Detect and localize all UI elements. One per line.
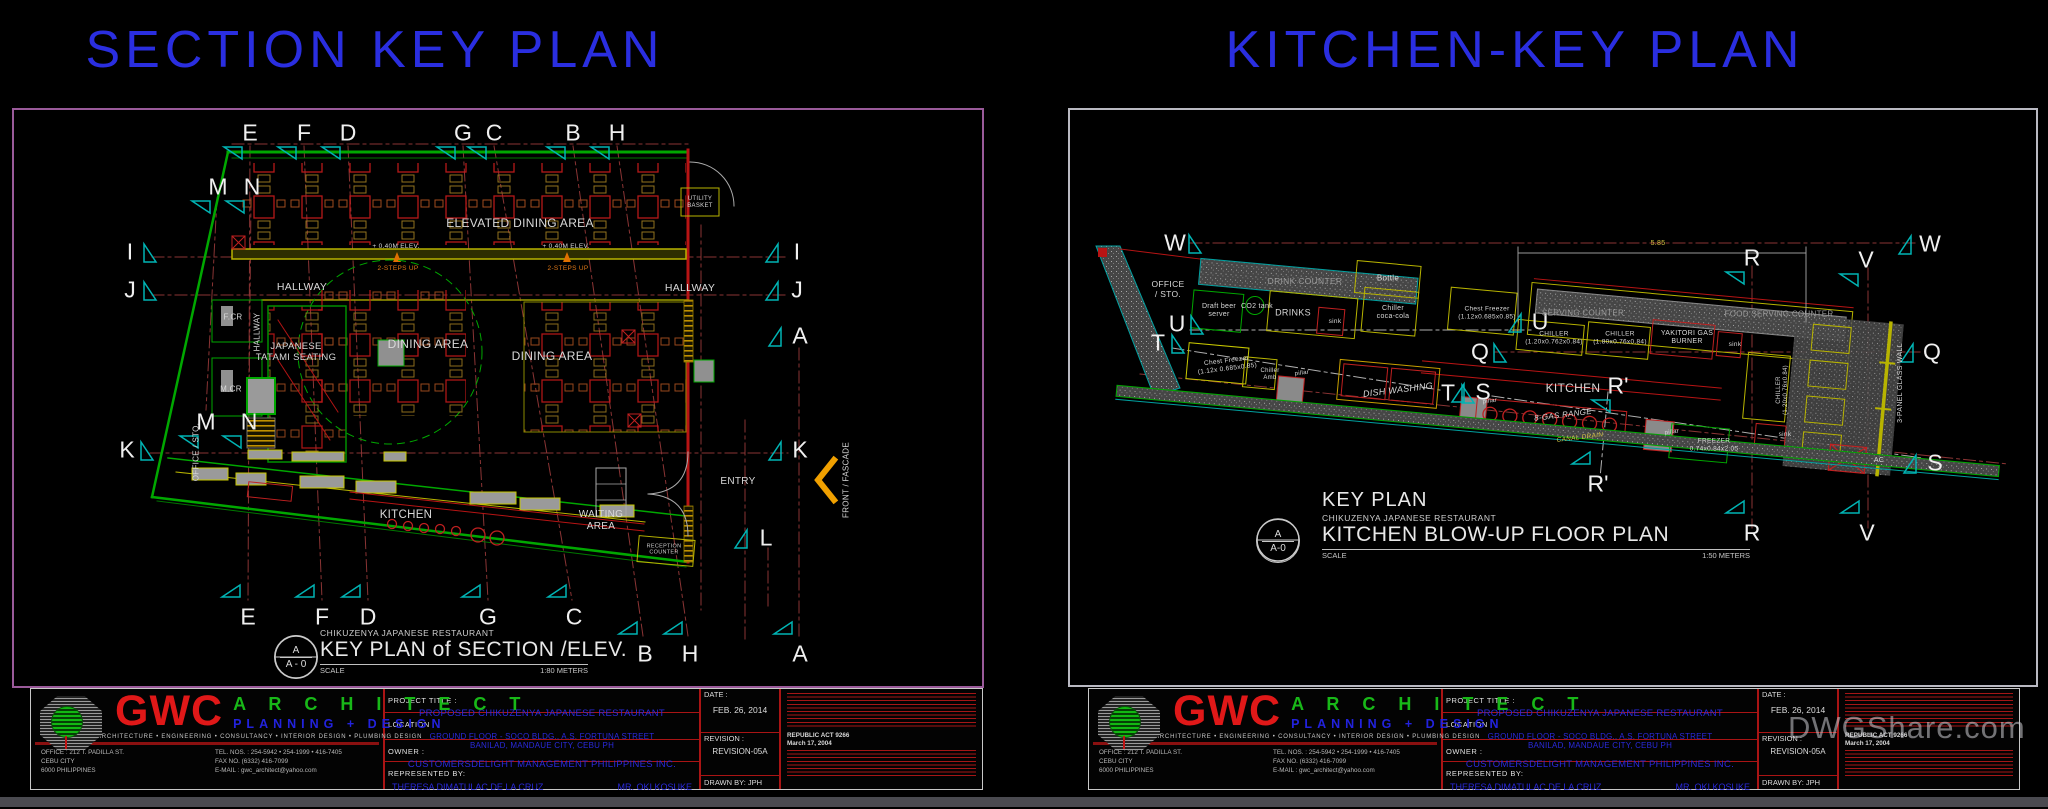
room-label-dining-area: DINING AREA: [512, 349, 593, 363]
room-label-bottle: Bottle: [1377, 273, 1399, 282]
room-label-2-steps-up: 2-STEPS UP: [548, 265, 589, 273]
firm-services-line: ARCHITECTURE • ENGINEERING • CONSULTANCY…: [1155, 734, 1437, 740]
room-label-serving-counter: SERVING COUNTER: [1542, 308, 1624, 317]
section-marker-triangle-icon: [139, 440, 161, 462]
left-detail-bubble: A A - 0: [274, 635, 318, 679]
section-marker-triangle-icon: [320, 145, 342, 167]
room-label-pillar: pillar: [1294, 370, 1309, 379]
section-marker-triangle-icon: [294, 583, 316, 605]
firm-word-architect: A R C H I T E C T: [1291, 694, 1587, 715]
room-label-reception-counter: RECEPTION COUNTER: [647, 544, 682, 557]
section-marker-triangle-icon: [1170, 333, 1192, 355]
room-label-kitchen: KITCHEN: [1546, 381, 1601, 395]
room-label-chest-freezer-1-12x0-685x0-8: Chest Freezer (1.12x0.685x0.85): [1458, 305, 1516, 320]
firm-logo-section: GWC A R C H I T E C T PLANNING + DESIGN …: [1089, 689, 1441, 789]
section-marker-triangle-icon: [1839, 499, 1861, 521]
section-marker-triangle-icon: [1838, 272, 1860, 294]
room-label-chiller-1-20x0-76x0-84: CHILLER (1.20x0.76x0.84): [1776, 365, 1790, 415]
fine-print-notes: [787, 750, 976, 778]
watermark: DWGShare.com: [1788, 710, 2026, 746]
section-marker-triangle-icon: [1570, 450, 1592, 472]
room-label-elevated-dining-area: ELEVATED DINING AREA: [446, 216, 594, 230]
section-marker-triangle-icon: [762, 280, 784, 302]
section-marker-triangle-icon: [589, 145, 611, 167]
section-marker-triangle-icon: [142, 280, 164, 302]
section-marker-triangle-icon: [772, 620, 794, 642]
room-label-pillar: pillar: [1664, 429, 1679, 438]
room-label-canal-drain: CANAL DRAIN: [1556, 431, 1603, 444]
section-marker-triangle-icon: [1900, 453, 1922, 475]
section-marker-triangle-icon: [731, 528, 753, 550]
gwc-logo-icon: [40, 696, 102, 750]
section-marker-triangle-icon: [222, 145, 244, 167]
left-caption-project: CHIKUZENYA JAPANESE RESTAURANT: [320, 628, 588, 638]
representative-2: MR. OKI KOSUKE: [1675, 782, 1750, 792]
section-marker-triangle-icon: [220, 583, 242, 605]
room-label-japanese-tatami-seating: JAPANESE TATAMI SEATING: [256, 341, 337, 363]
room-label-3-panel-glass-wall: 3-PANEL GLASS WALL: [1897, 343, 1905, 423]
section-marker-triangle-icon: [546, 583, 568, 605]
section-marker-triangle-icon: [762, 242, 784, 264]
represented-by-label: REPRESENTED BY:: [388, 769, 466, 778]
cad-drawing-page: SECTION KEY PLAN KITCHEN-KEY PLAN EFDGCB…: [0, 0, 2048, 809]
firm-contact: TEL. NOS. : 254-5942 • 254-1999 • 416-74…: [181, 748, 342, 776]
section-marker-triangle-icon: [1895, 234, 1917, 256]
room-label-chiller-1-20x0-762x0-84: CHILLER (1.20x0.762x0.84): [1525, 330, 1583, 345]
firm-word-planning-design: PLANNING + DESIGN: [233, 717, 529, 731]
fine-print-notes: [787, 693, 976, 729]
left-title-block: GWC A R C H I T E C T PLANNING + DESIGN …: [30, 688, 983, 790]
right-scale-label: SCALE: [1322, 551, 1347, 560]
room-label-sink: sink: [1329, 318, 1342, 326]
detail-letter: A: [1262, 529, 1295, 542]
firm-contact: TEL. NOS. : 254-5942 • 254-1999 • 416-74…: [1239, 748, 1400, 776]
sheet-number: A-0: [1270, 542, 1286, 554]
right-caption-heading: KEY PLAN: [1322, 489, 1750, 512]
left-scale-value: 1:80 METERS: [540, 666, 588, 675]
section-marker-triangle-icon: [662, 620, 684, 642]
date-label: DATE :: [704, 690, 776, 699]
detail-letter: A: [280, 645, 313, 658]
sheet-number: A - 0: [286, 658, 307, 670]
section-marker-triangle-icon: [545, 145, 567, 167]
room-label-sink: sink: [1729, 341, 1742, 349]
room-label-ac: AC: [1874, 457, 1884, 465]
room-label-front-fascade: FRONT / FASCADE: [841, 442, 850, 518]
section-marker-triangle-icon: [1590, 398, 1612, 420]
room-label-drink-counter: DRINK COUNTER: [1268, 276, 1343, 286]
room-label-0-40m-elev: + 0.40M ELEV.: [372, 243, 419, 251]
right-caption-project: CHIKUZENYA JAPANESE RESTAURANT: [1322, 513, 1750, 523]
room-label-yakitori-gas-burner: YAKITORI GAS BURNER: [1661, 330, 1713, 347]
room-label-dining-area: DINING AREA: [388, 337, 469, 351]
room-label-dish-washing: DISH WASHING: [1362, 380, 1433, 399]
section-marker-triangle-icon: [340, 583, 362, 605]
right-caption-title: KITCHEN BLOW-UP FLOOR PLAN: [1322, 523, 1750, 550]
drawn-by: DRAWN BY: JPH: [1759, 776, 1837, 789]
room-label-office-sto: OFFICE / STO.: [191, 423, 200, 481]
section-marker-triangle-icon: [765, 440, 787, 462]
room-label-utility-basket: UTILITY BASKET: [687, 196, 712, 210]
firm-initials: GWC: [115, 692, 223, 732]
section-marker-triangle-icon: [435, 145, 457, 167]
right-scale-value: 1:50 METERS: [1702, 551, 1750, 560]
room-label-freezer-0-74x0-84x2-05: FREEZER 0.74x0.84x2.05: [1690, 437, 1739, 452]
left-caption: CHIKUZENYA JAPANESE RESTAURANT KEY PLAN …: [320, 628, 588, 675]
section-marker-triangle-icon: [1187, 233, 1209, 255]
section-marker-triangle-icon: [1724, 270, 1746, 292]
room-label-food-serving-counter: FOOD SERVING COUNTER: [1725, 309, 1834, 318]
date-revision-section: DATE : FEB. 26, 2014 REVISION : REVISION…: [699, 689, 779, 789]
section-marker-triangle-icon: [460, 583, 482, 605]
logo-globe-icon: [51, 706, 83, 738]
section-marker-triangle-icon: [765, 326, 787, 348]
room-label-co2-tank: CO2 tank: [1241, 303, 1273, 311]
firm-word-architect: A R C H I T E C T: [233, 694, 529, 715]
room-label-chiller-amb: Chiller Amb: [1260, 368, 1279, 382]
room-label-draft-beer-server: Draft beer server: [1202, 303, 1236, 320]
firm-services-line: ARCHITECTURE • ENGINEERING • CONSULTANCY…: [97, 734, 379, 740]
room-label-chest-freezer-1-12x-0-685x0-: Chest Freezer (1.12x 0.685x0.85): [1196, 354, 1257, 376]
section-marker-triangle-icon: [276, 145, 298, 167]
notes-section: REPUBLIC ACT 9266 March 17, 2004: [779, 689, 982, 789]
room-label-f-cr: F.CR: [224, 312, 243, 321]
room-label-kitchen: KITCHEN: [380, 509, 433, 523]
room-label-m-cr: M.CR: [220, 384, 242, 393]
right-detail-bubble: A A-0: [1256, 519, 1300, 563]
section-marker-triangle-icon: [190, 199, 212, 221]
room-label-5-85: 5.85: [1651, 240, 1666, 248]
room-label-8-gas-range: 8-GAS RANGE: [1534, 407, 1593, 423]
representative-2: MR. OKI KOSUKE: [617, 782, 692, 792]
room-label-chiller-1-80x0-76x0-84: CHILLER (1.80x0.76x0.84): [1593, 330, 1647, 345]
section-marker-triangle-icon: [1448, 382, 1470, 404]
room-label-0-40m-elev: + 0.40M ELEV.: [542, 243, 589, 251]
logo-globe-icon: [1109, 706, 1141, 738]
owner-label: OWNER :: [388, 747, 424, 756]
firm-logo-section: GWC A R C H I T E C T PLANNING + DESIGN …: [31, 689, 383, 789]
room-label-hallway: HALLWAY: [252, 313, 261, 352]
firm-address: OFFICE : 212 T. PADILLA ST. CEBU CITY 60…: [35, 748, 181, 776]
room-label-pillar: pillar: [1482, 398, 1497, 407]
revision-value: REVISION-05A: [704, 743, 776, 760]
left-scale-label: SCALE: [320, 666, 345, 675]
room-label-chiller-coca-cola: Chiller coca-cola: [1377, 305, 1410, 322]
section-marker-triangle-icon: [224, 199, 246, 221]
room-label-drinks: DRINKS: [1275, 308, 1311, 319]
section-marker-triangle-icon: [466, 145, 488, 167]
room-label-entry: ENTRY: [720, 476, 755, 488]
fine-print-notes: [1845, 750, 2013, 778]
firm-initials: GWC: [1173, 692, 1281, 732]
section-marker-triangle-icon: [142, 242, 164, 264]
drawn-by: DRAWN BY: JPH: [701, 776, 779, 789]
room-label-sink: sink: [1779, 431, 1792, 439]
section-marker-triangle-icon: [1492, 342, 1514, 364]
room-label-hallway: HALLWAY: [665, 282, 715, 294]
room-label-waiting-area: WAITING AREA: [579, 509, 624, 533]
revision-label: REVISION :: [704, 734, 776, 743]
room-label-2-steps-up: 2-STEPS UP: [378, 265, 419, 273]
left-caption-title: KEY PLAN of SECTION /ELEV.: [320, 638, 588, 665]
firm-word-planning-design: PLANNING + DESIGN: [1291, 717, 1587, 731]
representative-1: THERESA DIMATULAC DE LA CRUZ: [1450, 782, 1601, 792]
room-label-office-sto: OFFICE / STO.: [1152, 279, 1185, 299]
section-marker-triangle-icon: [221, 434, 243, 456]
republic-act-ref: REPUBLIC ACT 9266: [787, 732, 849, 739]
representative-1: THERESA DIMATULAC DE LA CRUZ: [392, 782, 543, 792]
title-block: GWC A R C H I T E C T PLANNING + DESIGN …: [30, 688, 983, 790]
right-caption: KEY PLAN CHIKUZENYA JAPANESE RESTAURANT …: [1322, 489, 1750, 560]
firm-address: OFFICE : 212 T. PADILLA ST. CEBU CITY 60…: [1093, 748, 1239, 776]
owner-label: OWNER :: [1446, 747, 1482, 756]
room-label-hallway: HALLWAY: [277, 281, 327, 293]
republic-act-date: March 17, 2004: [787, 740, 832, 747]
gwc-logo-icon: [1098, 696, 1160, 750]
represented-by-label: REPRESENTED BY:: [1446, 769, 1524, 778]
date-value: FEB. 26, 2014: [704, 699, 776, 721]
date-label: DATE :: [1762, 690, 1834, 699]
